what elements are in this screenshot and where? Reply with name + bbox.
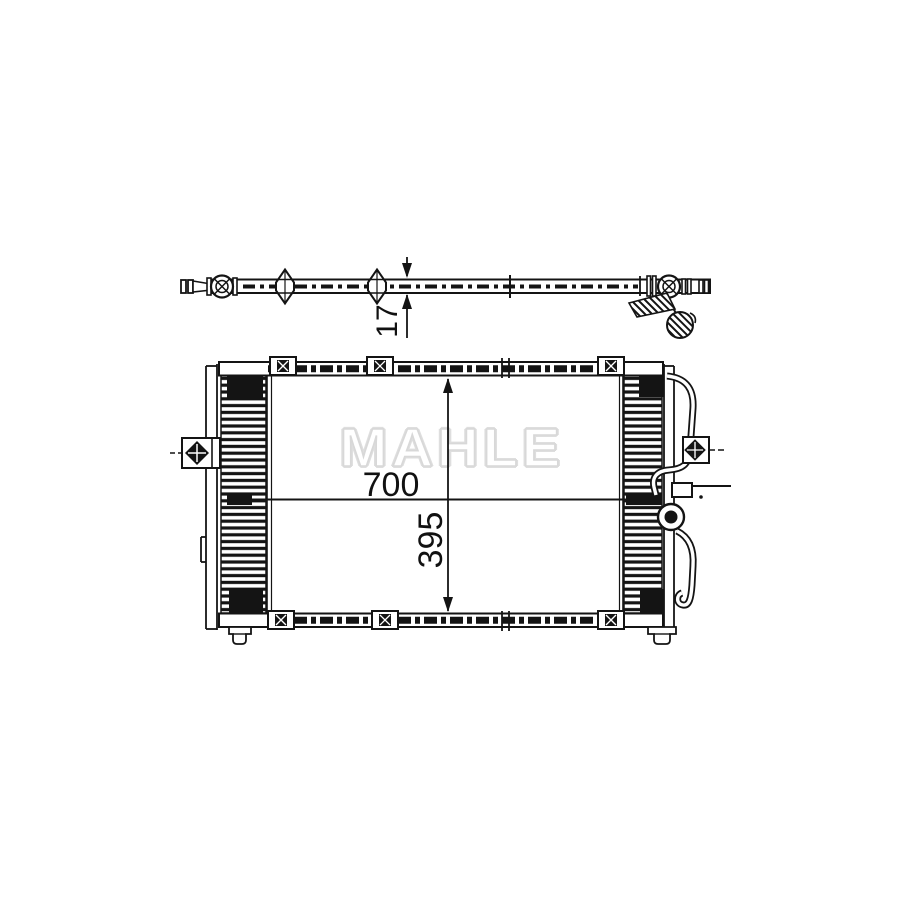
- dimension-label-width: 700: [363, 468, 420, 502]
- mounting-clip: [598, 611, 624, 629]
- front-view-drawing: [170, 357, 731, 644]
- mounting-clip: [268, 611, 294, 629]
- inlet-fitting: [207, 276, 237, 298]
- receiver-drier: [658, 504, 684, 530]
- technical-drawing-page: MAHLE: [0, 0, 900, 900]
- pipe-end-hatched: [667, 312, 693, 338]
- condenser-line-art: [0, 0, 900, 900]
- left-side-plate: [201, 364, 217, 630]
- top-view-drawing: [181, 257, 710, 338]
- mounting-clip: [367, 357, 393, 375]
- core-outline: [267, 375, 623, 614]
- mounting-clip: [372, 611, 398, 629]
- bracket-plate-hatched: [629, 293, 675, 317]
- mounting-tab-right: [368, 270, 386, 304]
- tank-separator-blocks: [227, 371, 664, 613]
- mounting-tab-left: [276, 270, 294, 304]
- mounting-foot-left: [229, 627, 251, 644]
- height-dimension: [443, 378, 453, 612]
- connection-fitting: [672, 483, 731, 499]
- right-mounting-bracket: [683, 437, 724, 463]
- mounting-clip: [598, 357, 624, 375]
- dimension-label-thickness: 17: [373, 304, 403, 337]
- serpentine-pipe-lower: [677, 531, 693, 605]
- dimension-label-height: 395: [414, 512, 448, 569]
- mounting-foot-right: [648, 627, 676, 644]
- left-mounting-bracket: [170, 438, 220, 468]
- mounting-clip: [270, 357, 296, 375]
